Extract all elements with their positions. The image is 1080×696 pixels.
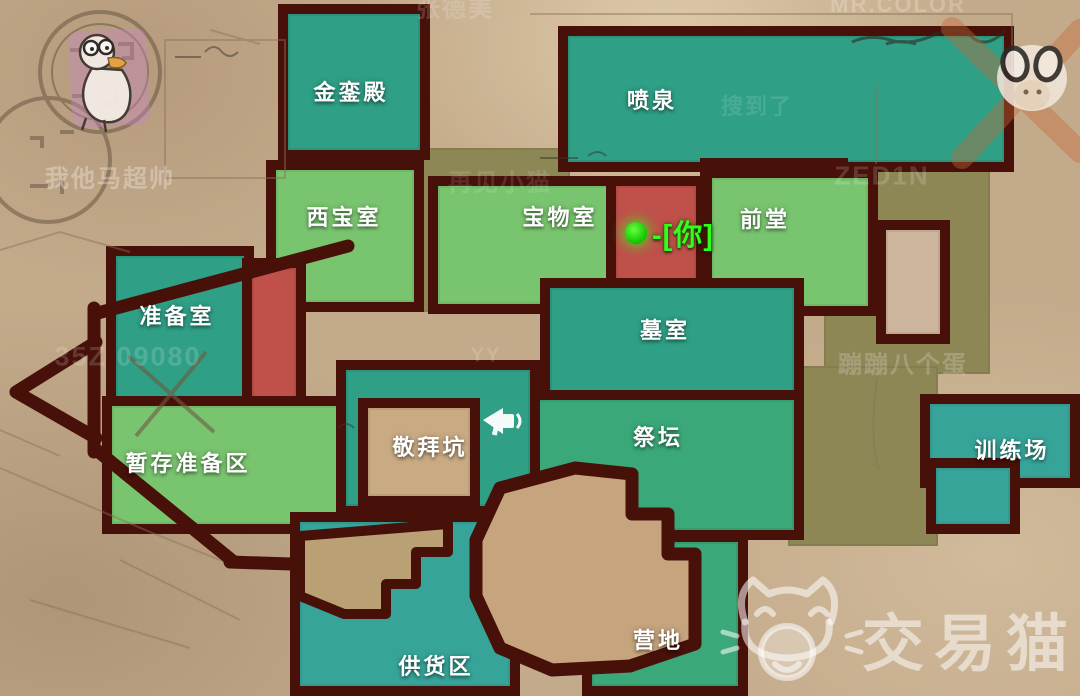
brand-watermark-text: 交易猫	[862, 593, 1078, 683]
player-marker-label: -[你]	[652, 212, 714, 254]
player-marker-dot	[625, 222, 647, 244]
game-map: 金銮殿喷泉西宝室宝物室前堂准备室暂存准备区墓室祭坛敬拜坑训练场营地供货区 我他马…	[0, 0, 1080, 696]
cat-logo-icon	[723, 580, 861, 678]
overlay-icons	[0, 0, 1080, 696]
megaphone-icon	[483, 408, 520, 436]
